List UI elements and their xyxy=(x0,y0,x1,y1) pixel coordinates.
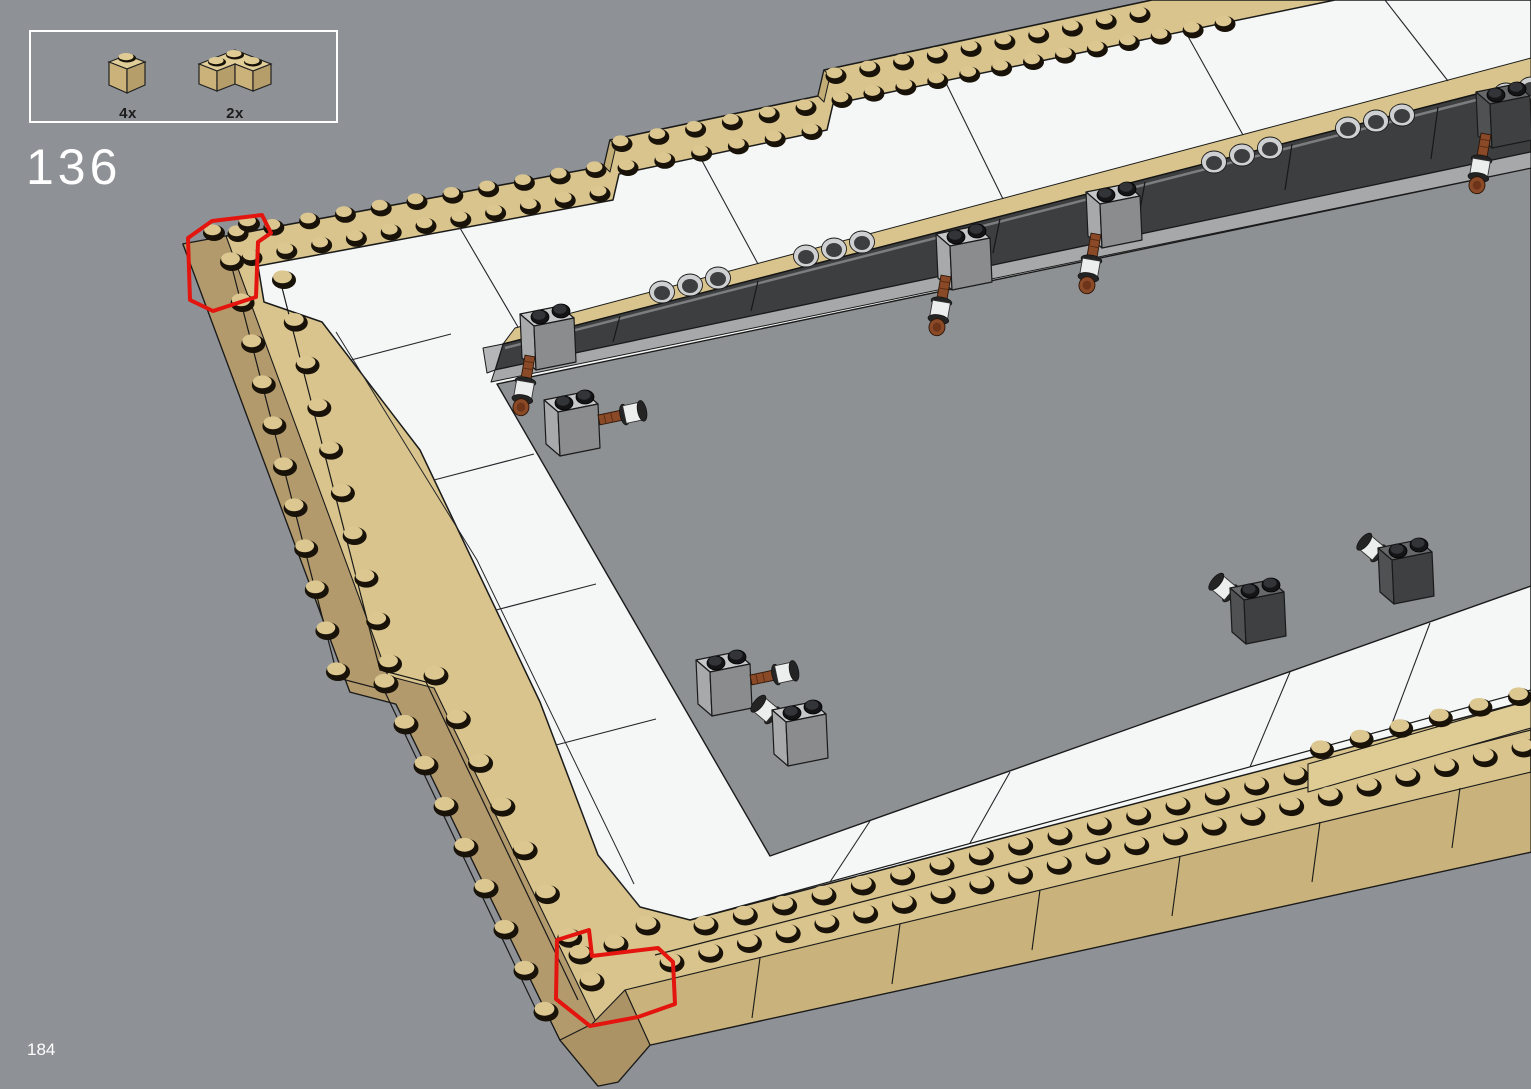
parts-callout-box: 4x 2x xyxy=(29,30,338,123)
step-number: 136 xyxy=(26,138,121,196)
brick-1x1-icon xyxy=(101,42,155,98)
frame-model xyxy=(183,0,1531,1086)
part-count-label: 2x xyxy=(189,105,281,122)
instruction-page: { "page": { "step_number": "136", "page_… xyxy=(0,0,1531,1089)
part-count-label: 4x xyxy=(101,105,155,122)
part-item-1x1-brick: 4x xyxy=(101,42,155,122)
step-illustration xyxy=(0,0,1531,1089)
brick-corner-icon xyxy=(189,42,281,98)
part-item-corner-brick: 2x xyxy=(189,42,281,122)
page-number: 184 xyxy=(27,1040,55,1060)
